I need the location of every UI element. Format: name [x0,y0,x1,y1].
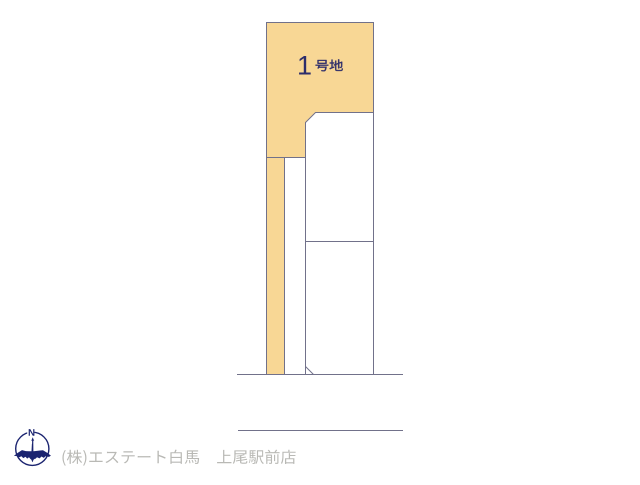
svg-text:1: 1 [297,50,312,80]
